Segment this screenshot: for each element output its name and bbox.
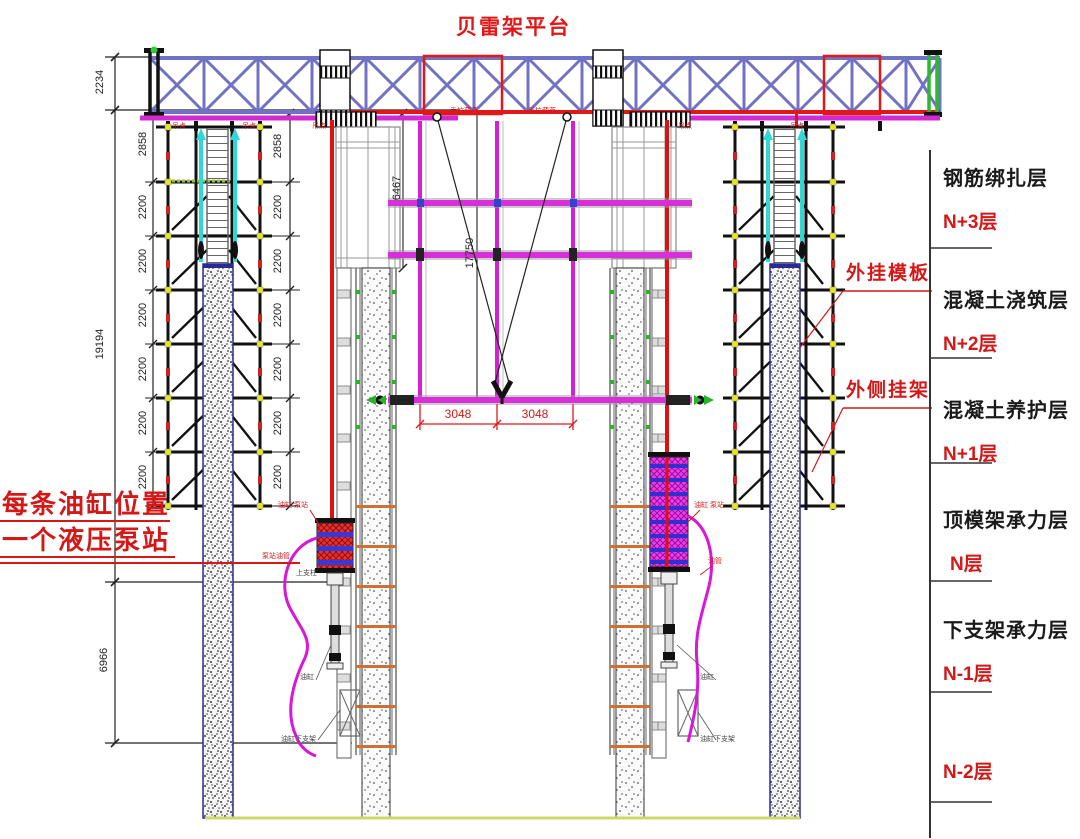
- cylinder-label: 油缸: [700, 674, 714, 682]
- bailey-truss: [140, 47, 942, 132]
- outer-pier-right: [770, 264, 800, 818]
- pump-hose-label: 泵站油管: [262, 553, 290, 561]
- climbing-rail: [337, 268, 351, 758]
- cylinder-bracket-label: 油缸下支架: [281, 736, 316, 744]
- cylinder-pump-label: 油缸 泵站: [694, 502, 724, 510]
- red-panel-marker-left: [424, 56, 502, 114]
- callout-outer-hanger: 外侧挂架: [846, 381, 930, 402]
- drawing-canvas: 贝雷架平台 钢筋绑扎层 N+3层 混凝土浇筑层 N+2层 混凝土养护层 N+1层…: [0, 0, 1080, 839]
- inner-pier-right: [616, 268, 644, 818]
- lift-point-label: 吊点: [678, 123, 692, 131]
- drawing-title: 贝雷架平台: [456, 16, 571, 39]
- cross-beam-upper: [388, 199, 692, 207]
- legend-item-label: 钢筋绑扎层: [943, 168, 1048, 190]
- hoist-label: 手拉葫芦: [528, 108, 556, 116]
- dim-bay: 2200: [137, 445, 149, 509]
- dim-rail-upper: 6467: [391, 156, 403, 220]
- legend-item-label: 混凝土养护层: [943, 400, 1069, 422]
- dim-upper-bay: 2858: [137, 112, 149, 176]
- outer-pier-left: [203, 264, 233, 818]
- ladder: [774, 128, 795, 264]
- cylinder-bracket-label: 油缸下支架: [700, 736, 735, 744]
- right-tower: [723, 122, 845, 818]
- platform-beam: [366, 395, 714, 405]
- cylinder-label: 油缸: [300, 674, 314, 682]
- legend-item-label: 顶模架承力层: [943, 510, 1069, 532]
- legend-item-label: 下支架承力层: [943, 620, 1069, 642]
- cylinder-pump-label: 油缸 泵站: [278, 502, 308, 510]
- inner-right-assembly: [610, 112, 716, 818]
- dim-platform-bay: 3048: [428, 408, 488, 421]
- hang-point-right: [563, 113, 571, 121]
- legend-item-level: N-2层: [943, 763, 993, 784]
- lift-point-label: 吊点: [242, 123, 256, 131]
- dim-top-height: 2234: [94, 50, 106, 114]
- legend-item-level: N+3层: [943, 213, 997, 234]
- lift-point-label: 吊点: [790, 123, 804, 131]
- callout-formwork: 外挂模板: [846, 264, 930, 285]
- oil-hose-label: 油管: [708, 558, 722, 566]
- inner-left-assembly: [285, 112, 400, 818]
- dim-lower: 6966: [98, 628, 110, 692]
- legend-item-level: N+2层: [943, 335, 997, 356]
- lift-point-label: 吊点: [172, 123, 186, 131]
- upper-post-label: 上支柱: [296, 570, 317, 578]
- lift-point-label: 吊点: [312, 123, 326, 131]
- legend-item-level: N-1层: [943, 665, 993, 686]
- legend-item-level: N+1层: [943, 445, 997, 466]
- inner-pier-left: [362, 268, 390, 818]
- legend-item-label: 混凝土浇筑层: [943, 290, 1069, 312]
- dim-upper-bay: 2858: [272, 114, 284, 178]
- piston-rod: [665, 584, 673, 662]
- ladder: [207, 128, 228, 264]
- note-line2: 一个液压泵站: [2, 526, 170, 555]
- hang-point-left: [433, 113, 441, 121]
- dim-bay: 2200: [272, 445, 284, 509]
- dim-platform-bay: 3048: [505, 408, 565, 421]
- hoist-label: 手拉葫芦: [450, 108, 478, 116]
- dim-rail-total: 17750: [464, 221, 476, 285]
- legend-item-level: N层: [950, 555, 983, 576]
- hydraulic-hose-right: [688, 516, 711, 742]
- dim-overall: 19194: [94, 312, 106, 376]
- left-tower: [156, 122, 272, 818]
- legend-lines: [930, 150, 992, 838]
- piston-rod: [331, 585, 339, 663]
- suspension-cables: [437, 117, 567, 383]
